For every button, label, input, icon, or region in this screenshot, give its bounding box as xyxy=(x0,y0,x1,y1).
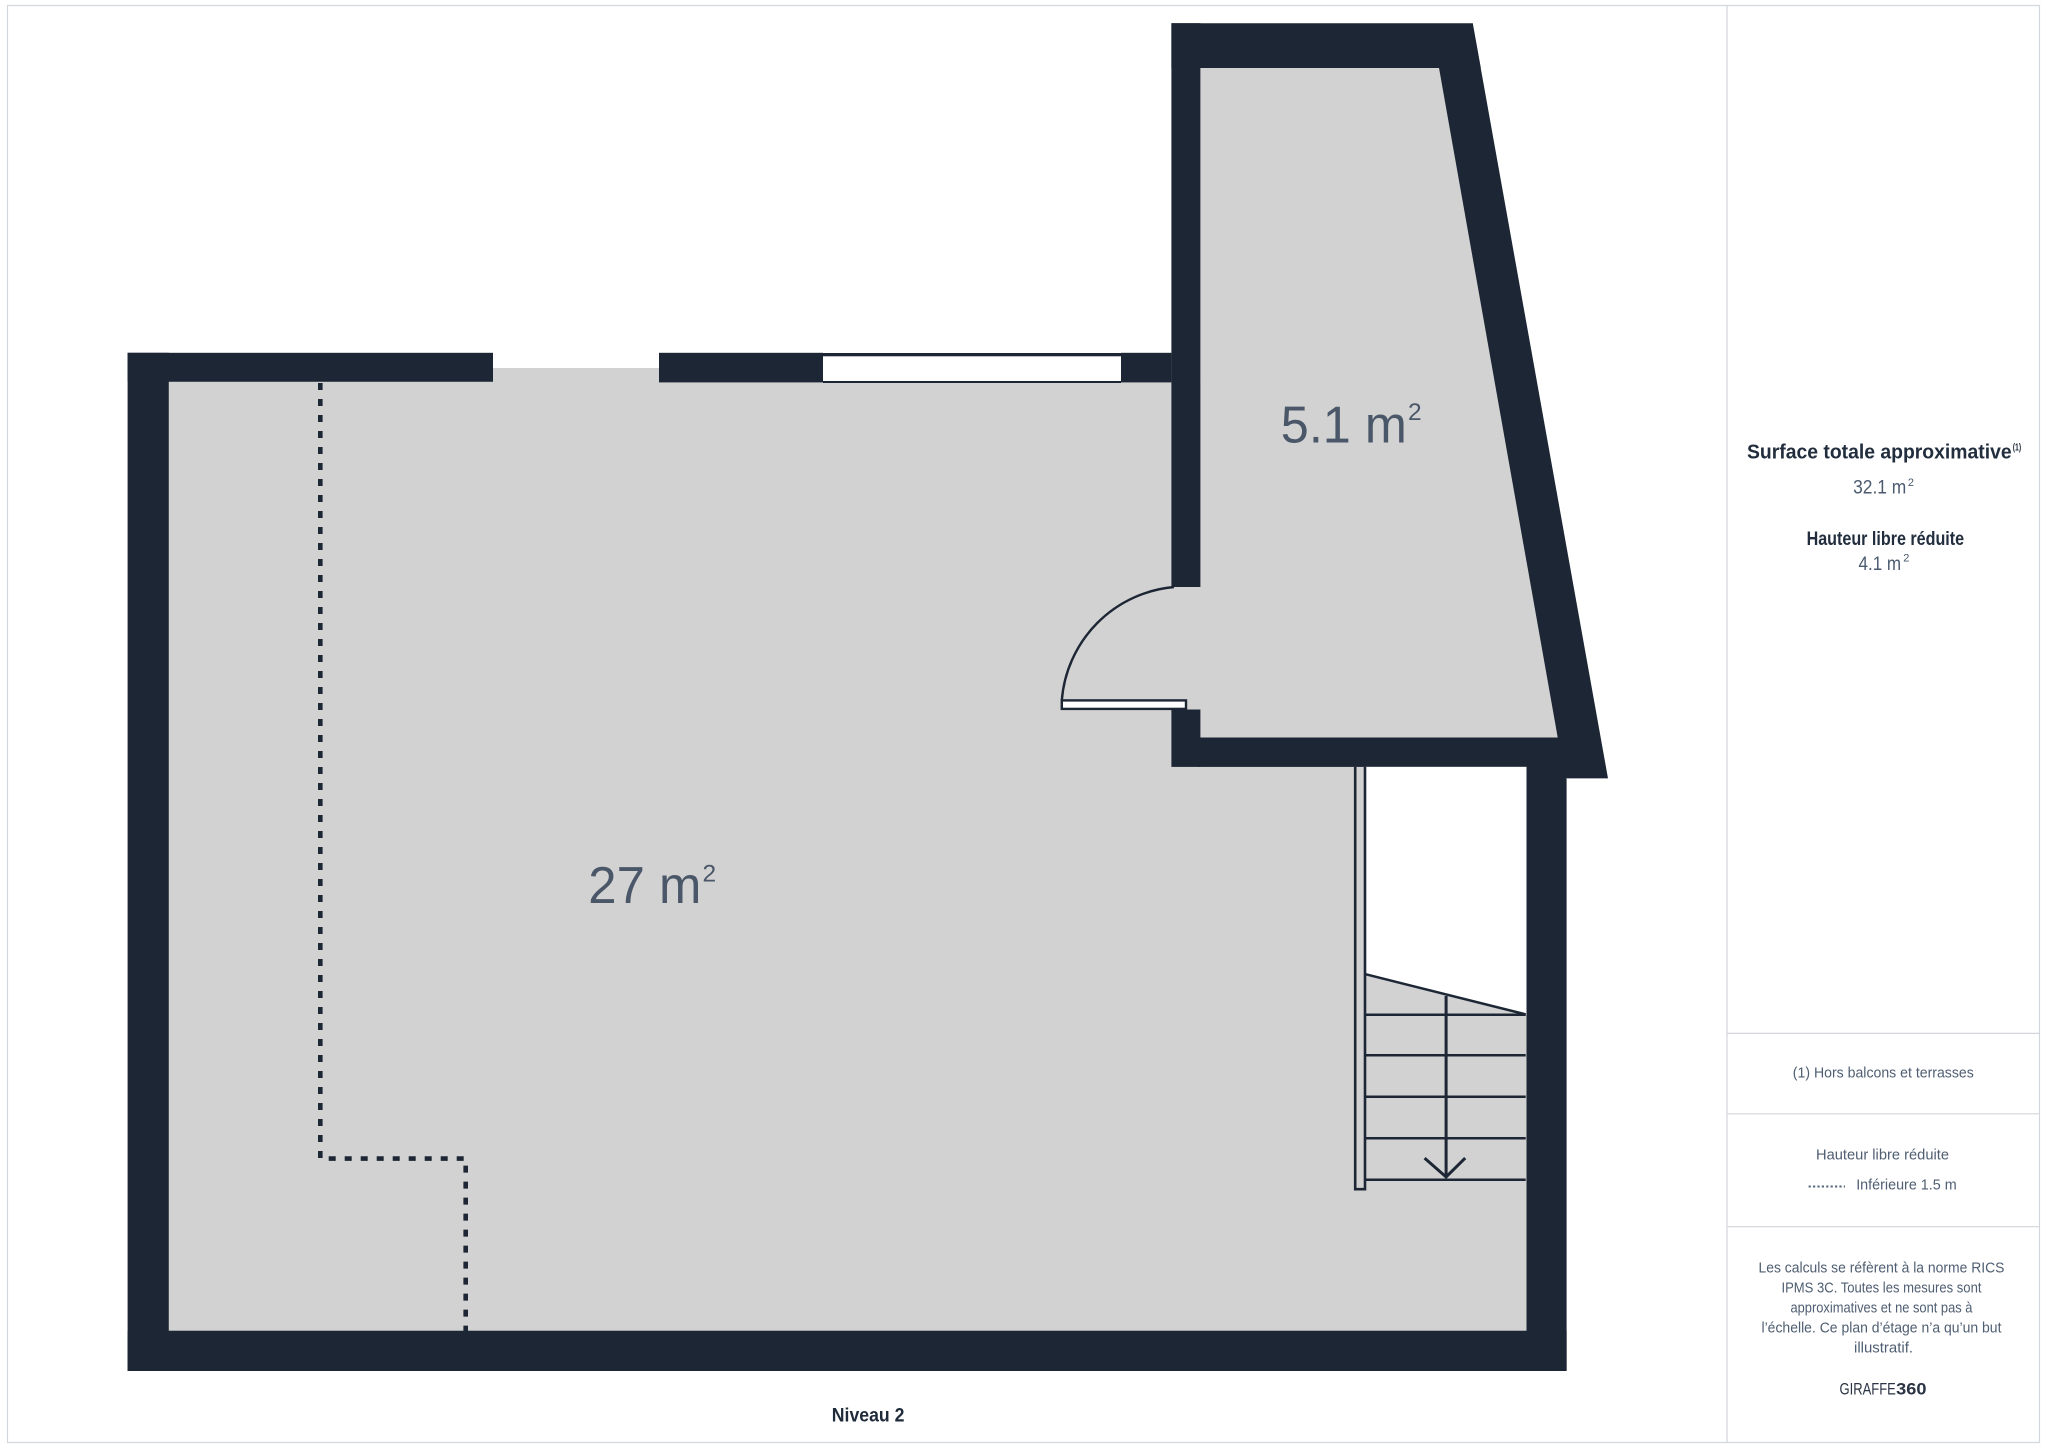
svg-text:2: 2 xyxy=(1908,477,1914,489)
svg-text:360: 360 xyxy=(1896,1379,1926,1398)
svg-text:Hauteur libre réduite: Hauteur libre réduite xyxy=(1807,528,1965,550)
svg-text:4.1 m: 4.1 m xyxy=(1859,553,1902,575)
svg-text:Inférieure 1.5 m: Inférieure 1.5 m xyxy=(1856,1177,1957,1193)
svg-text:Niveau 2: Niveau 2 xyxy=(832,1405,905,1427)
svg-text:2: 2 xyxy=(703,861,717,888)
svg-text:(1): (1) xyxy=(2013,442,2022,454)
svg-text:Hauteur libre réduite: Hauteur libre réduite xyxy=(1816,1147,1949,1163)
svg-text:2: 2 xyxy=(1903,553,1909,565)
svg-text:(1) Hors balcons et terrasses: (1) Hors balcons et terrasses xyxy=(1793,1065,1974,1081)
svg-text:32.1 m: 32.1 m xyxy=(1853,477,1906,499)
svg-text:GIRAFFE: GIRAFFE xyxy=(1840,1379,1896,1398)
svg-text:Les calculs se réfèrent à la n: Les calculs se réfèrent à la norme RICS … xyxy=(1758,1260,2008,1356)
svg-text:Surface totale approximative: Surface totale approximative xyxy=(1747,441,2012,464)
svg-text:2: 2 xyxy=(1408,399,1422,426)
svg-text:27 m: 27 m xyxy=(588,856,701,914)
svg-text:5.1 m: 5.1 m xyxy=(1281,396,1407,454)
